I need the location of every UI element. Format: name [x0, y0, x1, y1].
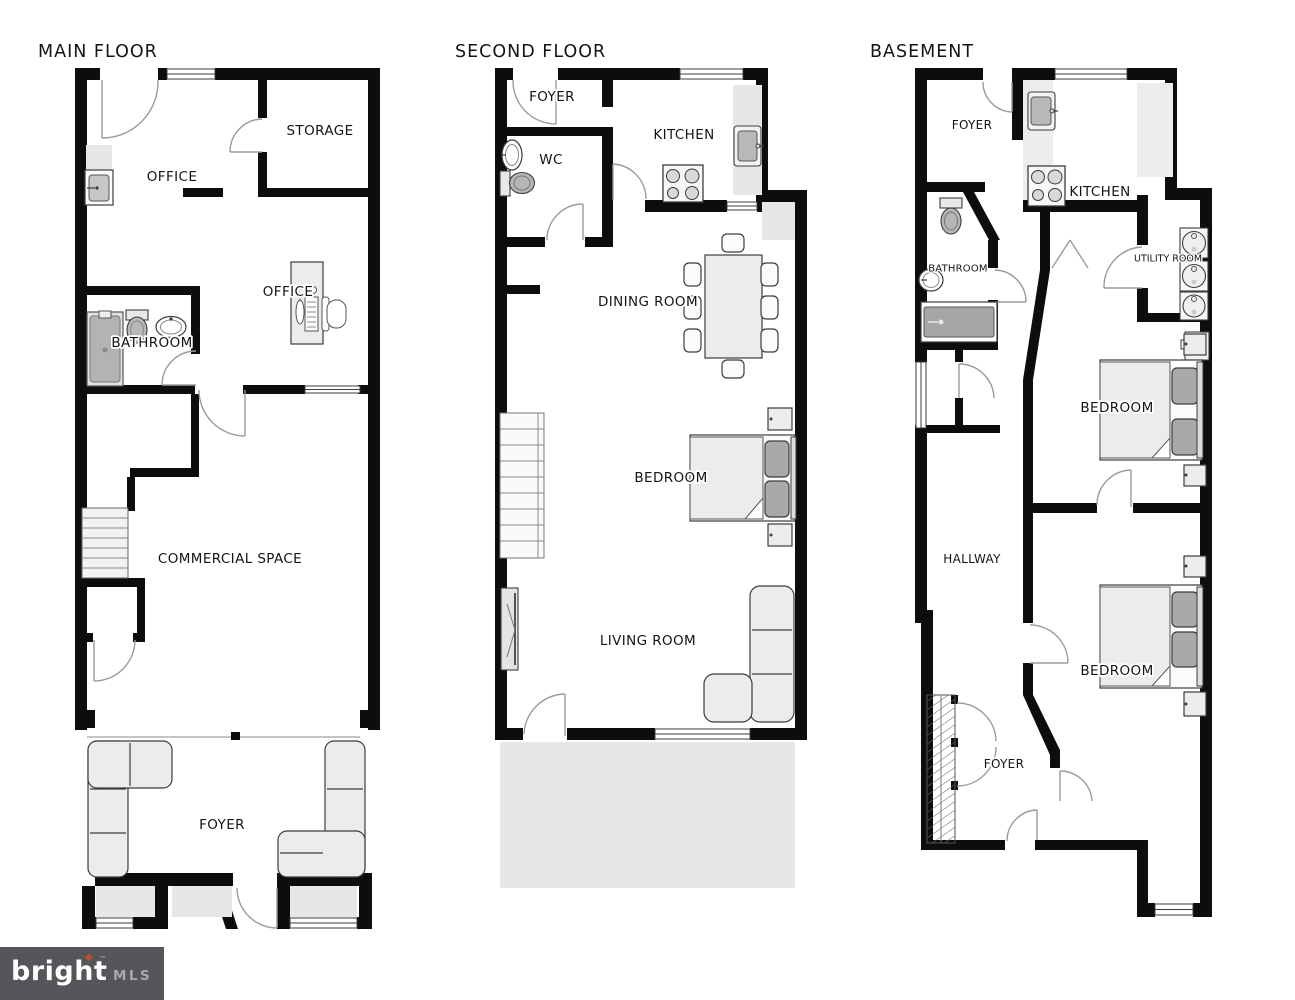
bed-basement-bottom [1100, 556, 1206, 716]
window [96, 918, 133, 928]
room-label-bathroom-main: BATHROOM [111, 335, 192, 351]
main-floor-title: MAIN FLOOR [38, 42, 158, 62]
stove [663, 165, 703, 202]
door [94, 640, 135, 681]
patio-floor [500, 742, 795, 888]
window [167, 69, 215, 79]
door [102, 80, 158, 138]
nightstand [1184, 465, 1206, 486]
second-floor-plan: SECOND FLOOR [455, 42, 807, 888]
door [230, 119, 262, 152]
foyer-sofa-right [278, 741, 365, 877]
foyer-sofa-left [88, 741, 172, 877]
room-label-dining: DINING ROOM [598, 294, 698, 310]
door-half-open [1052, 240, 1088, 268]
room-label-kitchen-basement: KITCHEN [1069, 184, 1130, 200]
window [655, 729, 750, 739]
closet-door [957, 703, 996, 741]
window [290, 918, 357, 928]
room-label-foyer-basement-top: FOYER [952, 118, 992, 132]
window [680, 69, 743, 79]
room-label-hallway: HALLWAY [943, 552, 1001, 566]
room-label-office-top: OFFICE [147, 169, 198, 185]
floor-plan-image: MAIN FLOOR [0, 0, 1295, 1000]
office-sink-unit [85, 145, 113, 205]
toilet [500, 171, 535, 196]
room-label-bedroom-basement-top: BEDROOM [1080, 400, 1153, 416]
trademark-symbol: ™ [99, 955, 106, 963]
brightmls-logo: bright ◆ ™ MLS [0, 947, 164, 1000]
second-floor-title: SECOND FLOOR [455, 42, 606, 62]
toilet [940, 198, 962, 234]
washer [1180, 261, 1208, 291]
main-floor-shaded-floors [96, 886, 357, 917]
office-chair [322, 297, 346, 331]
door [237, 888, 277, 928]
room-label-office-desk: OFFICE [263, 284, 314, 300]
diamond-icon: ◆ [85, 952, 93, 963]
door [547, 204, 583, 240]
window [916, 362, 926, 428]
room-label-foyer-main: FOYER [199, 817, 245, 833]
door [959, 364, 994, 398]
door [162, 351, 196, 385]
kitchen-sink [734, 126, 764, 166]
room-label-foyer-basement-bottom: FOYER [984, 757, 1024, 771]
room-label-commercial: COMMERCIAL SPACE [158, 551, 302, 567]
room-label-bathroom-basement: BATHROOM [928, 264, 987, 275]
interior-window [727, 202, 757, 210]
stairs-main [82, 508, 128, 578]
floorplan-svg: MAIN FLOOR [0, 0, 1295, 1000]
door [1007, 810, 1037, 841]
logo-mls-text: MLS [113, 968, 152, 984]
office-desk [291, 262, 346, 344]
room-label-kitchen-second: KITCHEN [653, 127, 714, 143]
room-label-bedroom-basement-bottom: BEDROOM [1080, 663, 1153, 679]
room-label-foyer-second: FOYER [529, 89, 575, 105]
nightstand [1184, 692, 1206, 716]
nightstand [1184, 556, 1206, 577]
room-label-storage: STORAGE [286, 123, 353, 139]
nightstand [1184, 334, 1206, 355]
room-label-bedroom-second: BEDROOM [634, 470, 707, 486]
basement-plan: BASEMENT [870, 42, 1212, 917]
tv-unit [501, 588, 518, 670]
dining-set [684, 234, 778, 378]
kitchen-second [663, 85, 795, 240]
main-floor-plan: MAIN FLOOR [38, 42, 380, 929]
bathtub [921, 302, 997, 342]
stairs-basement [927, 695, 955, 843]
kitchen-sink [1028, 92, 1058, 130]
door [199, 390, 245, 436]
door [524, 694, 565, 736]
interior-window [305, 386, 360, 393]
washer [1180, 292, 1208, 320]
stove [1028, 166, 1065, 206]
basement-title: BASEMENT [870, 42, 974, 62]
window [1055, 69, 1127, 79]
door [613, 164, 646, 200]
door [1097, 470, 1131, 507]
door [1060, 771, 1092, 801]
nightstand [768, 408, 792, 430]
room-label-utility: UTILITY ROOM [1134, 254, 1202, 265]
room-label-living: LIVING ROOM [600, 633, 696, 649]
stairs-second [500, 413, 544, 558]
window [1155, 904, 1193, 915]
room-label-wc: WC [539, 152, 563, 168]
door [1030, 625, 1068, 663]
door [983, 82, 1012, 112]
door [995, 270, 1026, 302]
sink [501, 140, 522, 170]
nightstand [768, 524, 792, 546]
living-sofa [704, 586, 794, 722]
